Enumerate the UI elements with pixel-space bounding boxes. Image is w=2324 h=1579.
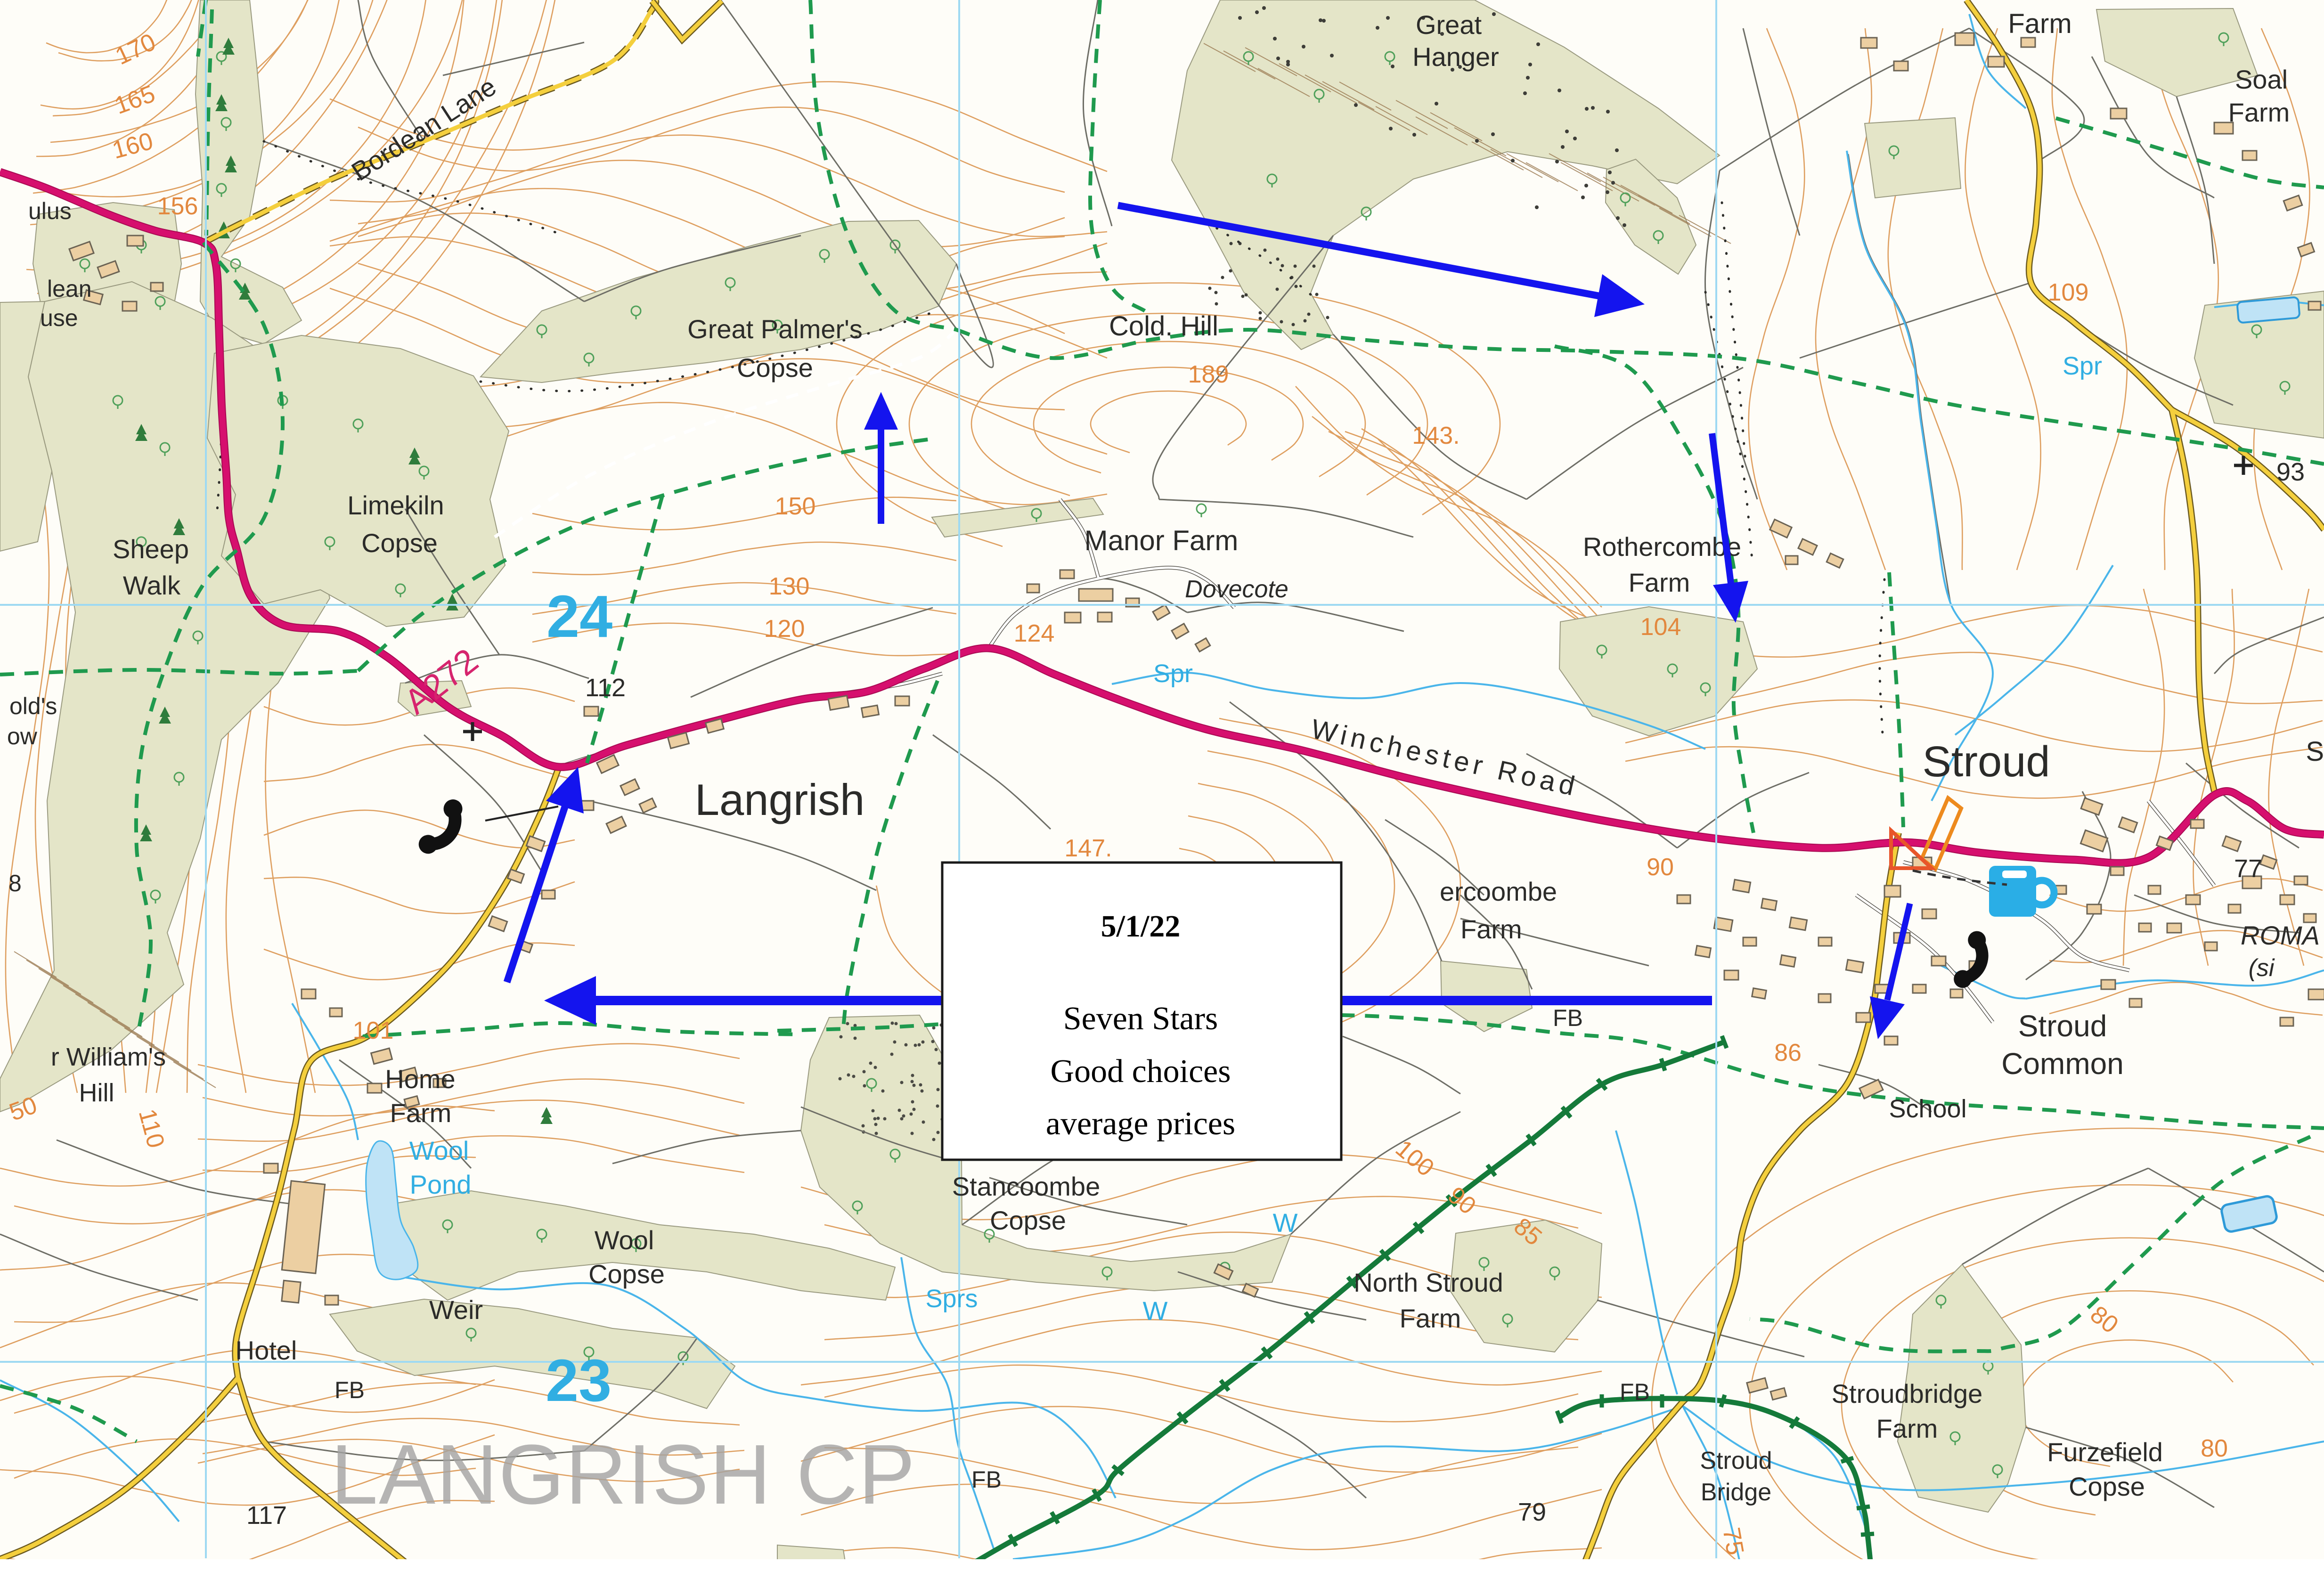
svg-text:(si: (si [2249,954,2275,982]
svg-text:Spr: Spr [1153,659,1193,688]
svg-text:101: 101 [353,1017,394,1044]
svg-text:Hill: Hill [79,1079,114,1107]
svg-text:Stancoombe: Stancoombe [952,1172,1100,1201]
svg-text:Sprs: Sprs [925,1285,978,1313]
svg-text:Farm: Farm [2228,98,2290,127]
svg-text:24: 24 [546,583,612,650]
svg-text:FB: FB [971,1466,1002,1493]
svg-text:Seven Stars: Seven Stars [1063,1001,1218,1037]
svg-text:Farm: Farm [1460,914,1522,944]
svg-text:Home: Home [385,1064,455,1094]
svg-text:130: 130 [769,573,810,600]
svg-text:90: 90 [1647,854,1674,881]
svg-text:86: 86 [1774,1039,1802,1066]
svg-text:Rothercombe: Rothercombe [1583,532,1741,562]
svg-text:Farm: Farm [2008,8,2071,39]
svg-text:93: 93 [2276,458,2305,486]
svg-text:8: 8 [8,870,22,896]
svg-text:ow: ow [7,723,38,749]
svg-text:143.: 143. [1412,422,1460,449]
svg-text:S: S [2306,736,2324,767]
svg-text:Common: Common [2001,1047,2124,1081]
svg-text:ulus: ulus [28,198,72,224]
svg-text:Furzefield: Furzefield [2047,1437,2163,1467]
svg-text:ROMA: ROMA [2241,920,2320,950]
svg-text:Limekiln: Limekiln [347,490,444,520]
svg-text:Good choices: Good choices [1051,1053,1231,1090]
svg-text:Copse: Copse [990,1205,1066,1235]
svg-text:Manor Farm: Manor Farm [1085,525,1239,556]
svg-text:Copse: Copse [588,1259,665,1289]
svg-text:23: 23 [546,1347,612,1414]
svg-text:FB: FB [1553,1005,1583,1031]
svg-text:Farm: Farm [1400,1303,1461,1333]
svg-text:5/1/22: 5/1/22 [1101,909,1181,944]
svg-text:Sheep: Sheep [113,534,189,564]
svg-text:117: 117 [246,1501,287,1530]
svg-text:Great Palmer's: Great Palmer's [687,314,863,344]
svg-text:Copse: Copse [361,528,438,558]
svg-text:School: School [1889,1095,1966,1123]
svg-text:use: use [40,305,78,331]
svg-text:W: W [1273,1208,1298,1237]
svg-text:W: W [1143,1296,1168,1326]
svg-text:147.: 147. [1064,835,1112,862]
svg-text:lean: lean [47,276,92,302]
svg-text:Hanger: Hanger [1412,42,1499,72]
svg-text:Wool: Wool [409,1136,469,1165]
svg-text:150: 150 [775,493,816,520]
svg-text:Farm: Farm [390,1098,452,1128]
svg-text:Spr: Spr [2063,352,2102,380]
svg-text:average prices: average prices [1046,1106,1235,1142]
svg-text:75: 75 [1717,1526,1749,1557]
svg-text:Copse: Copse [2069,1472,2145,1501]
svg-text:Stroudbridge: Stroudbridge [1832,1379,1983,1408]
svg-text:FB: FB [334,1377,365,1403]
svg-text:Stroud: Stroud [1922,738,2050,786]
svg-text:80: 80 [2201,1435,2228,1462]
svg-text:Pond: Pond [410,1170,472,1199]
svg-text:FB: FB [1620,1379,1650,1405]
svg-text:r William's: r William's [51,1043,166,1071]
svg-text:120: 120 [764,615,805,643]
svg-text:77: 77 [2234,855,2262,883]
svg-text:Wool: Wool [595,1225,654,1255]
svg-text:Weir: Weir [429,1295,483,1325]
svg-text:ercoombe: ercoombe [1440,877,1557,906]
svg-text:Great: Great [1416,10,1482,40]
svg-text:Stroud: Stroud [1700,1447,1772,1474]
svg-text:109: 109 [2048,279,2089,306]
svg-text:104: 104 [1640,613,1681,641]
svg-text:Farm: Farm [1629,568,1690,597]
svg-text:Copse: Copse [737,353,813,383]
svg-text:Langrish: Langrish [695,775,865,824]
svg-text:156: 156 [157,193,198,220]
svg-text:124: 124 [1014,620,1055,647]
svg-text:189: 189 [1188,361,1229,388]
svg-text:old's: old's [9,693,57,719]
svg-text:Stroud: Stroud [2018,1009,2107,1043]
svg-text:Cold. Hill: Cold. Hill [1109,311,1218,342]
svg-text:North Stroud: North Stroud [1354,1268,1503,1297]
svg-text:112: 112 [585,674,626,702]
svg-text:Dovecote: Dovecote [1185,576,1288,603]
svg-text:Bridge: Bridge [1701,1479,1771,1506]
svg-text:Soal: Soal [2235,65,2288,94]
svg-text:Walk: Walk [123,570,181,600]
svg-text:Farm: Farm [1876,1414,1938,1443]
svg-text:LANGRISH CP: LANGRISH CP [331,1427,916,1522]
svg-text:79: 79 [1518,1498,1546,1526]
svg-text:Hotel: Hotel [236,1335,297,1365]
